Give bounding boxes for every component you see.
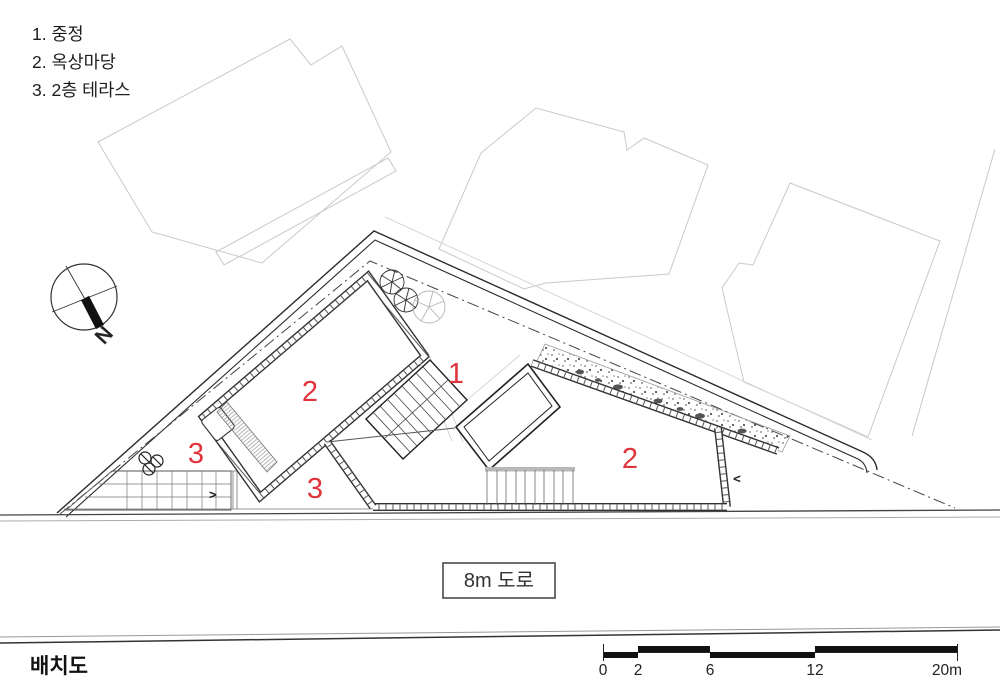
shrub-icon	[139, 452, 163, 475]
legend: 1. 중정 2. 옥상마당 3. 2층 테라스	[32, 20, 130, 104]
scale-label-20: 20m	[932, 662, 962, 680]
courtyard-opening	[456, 364, 560, 470]
tree-icon	[380, 270, 404, 294]
legend-item-2: 2. 옥상마당	[32, 48, 130, 76]
legend-item-1: 1. 중정	[32, 20, 130, 48]
scale-label-0: 0	[599, 662, 608, 680]
road-edge-lines	[0, 510, 1000, 521]
boundary-wall-inner	[66, 240, 867, 517]
road-label-box: 8m 도로	[443, 563, 555, 598]
grid-paving	[66, 471, 231, 510]
neighbor-lot-line-far-east	[912, 149, 995, 436]
north-arrow-icon	[85, 298, 100, 327]
scale-bar-segment	[603, 652, 638, 658]
neighbor-buildings	[98, 39, 995, 440]
label-area-2-right: 2	[622, 443, 638, 475]
scale-bar-tick	[603, 644, 604, 661]
entry-arrow-right-icon: >	[209, 488, 217, 503]
site-plan-page: 8m 도로 N 1 2 3 3 2 > < 1. 중정 2. 옥상마당 3. 2…	[0, 0, 1000, 700]
road-label: 8m 도로	[464, 570, 534, 592]
entry-arrow-left-icon: <	[733, 472, 741, 487]
site-boundary-wall	[57, 231, 877, 517]
plan-drawing: 8m 도로 N 1 2 3 3 2 > <	[0, 0, 1000, 700]
neighbor-building-north	[439, 108, 708, 289]
label-area-2-left: 2	[302, 376, 318, 408]
planter-strip	[537, 344, 790, 452]
label-area-1: 1	[448, 358, 464, 390]
label-area-3-center: 3	[307, 473, 323, 505]
lower-road-lines	[0, 627, 1000, 643]
scale-bar-segment	[815, 646, 957, 652]
scale-label-6: 6	[706, 662, 715, 680]
scale-label-12: 12	[806, 662, 823, 680]
scale-bar-tick	[957, 644, 958, 661]
neighbor-strip-northwest	[216, 158, 396, 265]
scale-label-2: 2	[634, 662, 643, 680]
label-area-3-left: 3	[188, 438, 204, 470]
legend-item-3: 3. 2층 테라스	[32, 76, 130, 104]
tree-icon-light	[413, 291, 445, 323]
drawing-title: 배치도	[30, 650, 88, 680]
scale-bar: 0 2 6 12 20m	[595, 644, 980, 686]
scale-bar-segment	[710, 652, 815, 658]
neighbor-building-east	[722, 183, 940, 437]
scale-bar-segment	[638, 646, 710, 652]
north-compass: N	[51, 264, 117, 348]
neighbor-building-northwest	[98, 39, 391, 263]
